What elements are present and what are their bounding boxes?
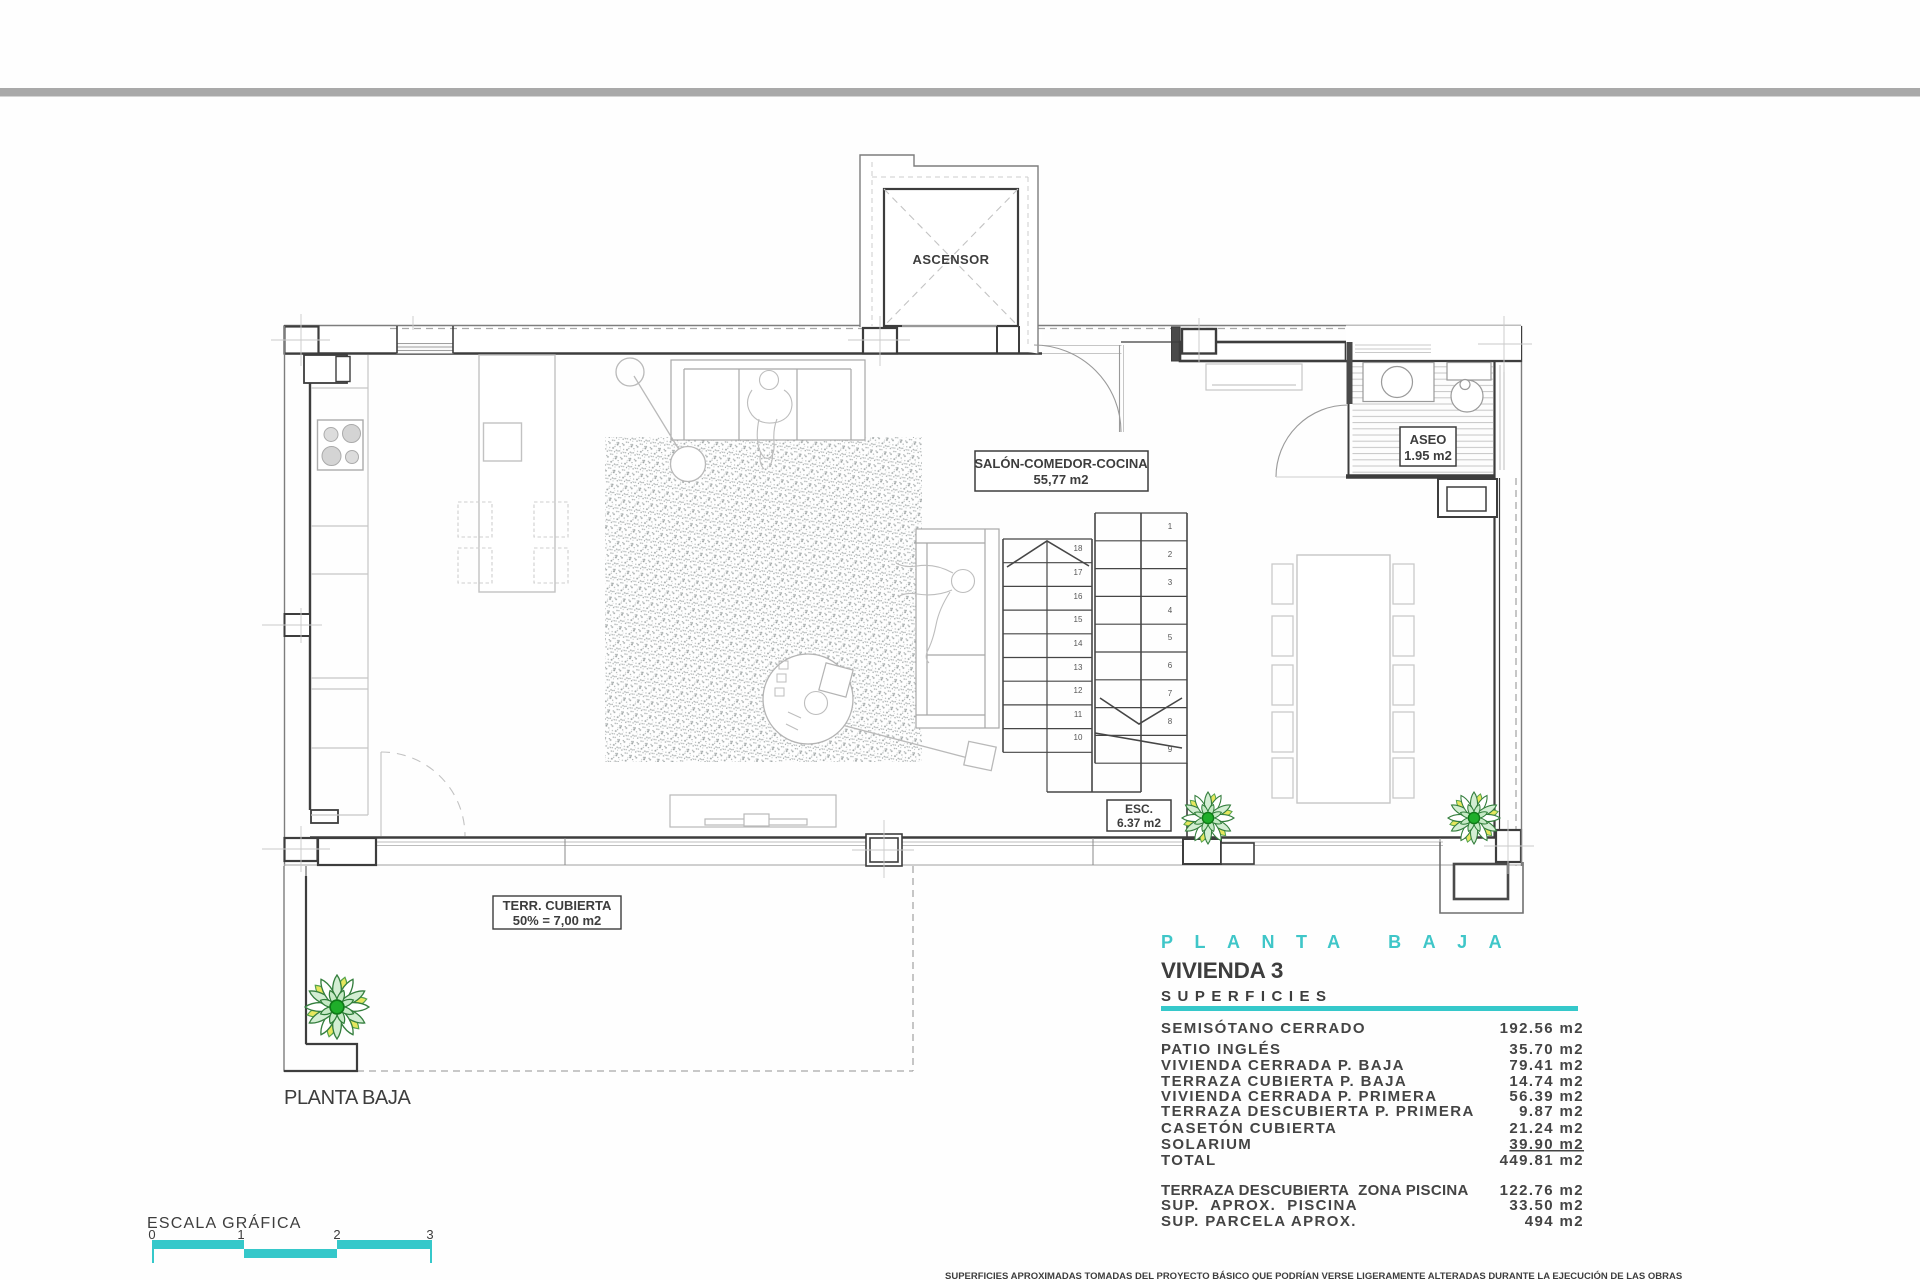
svg-text:SUPERFICIES: SUPERFICIES (1161, 988, 1333, 1005)
svg-text:17: 17 (1074, 568, 1083, 577)
svg-text:11: 11 (1074, 710, 1083, 719)
svg-text:PLANTA BAJA: PLANTA BAJA (284, 1087, 411, 1109)
svg-text:35.70 m2: 35.70 m2 (1509, 1041, 1584, 1058)
svg-text:PATIO INGLÉS: PATIO INGLÉS (1161, 1041, 1281, 1058)
svg-text:7: 7 (1168, 689, 1173, 698)
svg-text:SEMISÓTANO CERRADO: SEMISÓTANO CERRADO (1161, 1019, 1366, 1037)
svg-text:3: 3 (426, 1227, 433, 1242)
svg-text:3: 3 (1168, 578, 1173, 587)
svg-text:55,77 m2: 55,77 m2 (1034, 472, 1089, 487)
svg-text:50% = 7,00 m2: 50% = 7,00 m2 (513, 913, 602, 928)
svg-text:192.56 m2: 192.56 m2 (1500, 1020, 1584, 1037)
svg-text:1: 1 (1168, 522, 1173, 531)
svg-text:18: 18 (1074, 544, 1083, 553)
svg-text:PLANTA BAJA: PLANTA BAJA (1161, 932, 1523, 952)
svg-text:2: 2 (1168, 550, 1173, 559)
svg-text:VIVIENDA CERRADA P. BAJA: VIVIENDA CERRADA P. BAJA (1161, 1057, 1405, 1074)
svg-text:16: 16 (1074, 592, 1083, 601)
svg-text:ASCENSOR: ASCENSOR (913, 252, 990, 267)
svg-text:39.90 m2: 39.90 m2 (1509, 1136, 1584, 1153)
svg-text:TERR. CUBIERTA: TERR. CUBIERTA (503, 898, 612, 913)
svg-text:79.41 m2: 79.41 m2 (1509, 1057, 1584, 1074)
svg-text:15: 15 (1074, 615, 1083, 624)
svg-text:2: 2 (333, 1227, 340, 1242)
svg-text:SUPERFICIES APROXIMADAS TOMADA: SUPERFICIES APROXIMADAS TOMADAS DEL PROY… (945, 1270, 1682, 1280)
svg-text:0: 0 (148, 1227, 155, 1242)
svg-text:VIVIENDA 3: VIVIENDA 3 (1161, 958, 1283, 983)
svg-text:494 m2: 494 m2 (1525, 1213, 1584, 1230)
svg-text:SUP. APROX. PISCINA: SUP. APROX. PISCINA (1161, 1197, 1358, 1214)
svg-text:ESC.: ESC. (1125, 802, 1153, 816)
svg-text:13: 13 (1074, 663, 1083, 672)
svg-text:SUP. PARCELA APROX.: SUP. PARCELA APROX. (1161, 1213, 1357, 1230)
svg-text:ASEO: ASEO (1410, 432, 1447, 447)
svg-text:ESCALA GRÁFICA: ESCALA GRÁFICA (147, 1213, 302, 1232)
svg-text:CASETÓN CUBIERTA: CASETÓN CUBIERTA (1161, 1119, 1337, 1137)
svg-text:SALÓN-COMEDOR-COCINA: SALÓN-COMEDOR-COCINA (974, 456, 1148, 471)
svg-text:8: 8 (1168, 717, 1173, 726)
svg-text:9: 9 (1168, 745, 1173, 754)
svg-text:1.95 m2: 1.95 m2 (1404, 448, 1452, 463)
svg-text:14: 14 (1074, 639, 1083, 648)
svg-text:TOTAL: TOTAL (1161, 1152, 1217, 1169)
svg-text:449.81 m2: 449.81 m2 (1500, 1152, 1584, 1169)
svg-text:TERRAZA DESCUBIERTA P. PRIMERA: TERRAZA DESCUBIERTA P. PRIMERA (1161, 1103, 1475, 1120)
svg-text:SOLARIUM: SOLARIUM (1161, 1136, 1252, 1153)
svg-text:9.87 m2: 9.87 m2 (1519, 1103, 1584, 1120)
svg-text:12: 12 (1074, 686, 1083, 695)
svg-text:6: 6 (1168, 661, 1173, 670)
svg-text:4: 4 (1168, 606, 1173, 615)
svg-text:10: 10 (1074, 733, 1083, 742)
svg-text:5: 5 (1168, 633, 1173, 642)
svg-text:1: 1 (237, 1227, 244, 1242)
svg-text:33.50 m2: 33.50 m2 (1509, 1197, 1584, 1214)
svg-text:6.37 m2: 6.37 m2 (1117, 816, 1161, 830)
svg-text:21.24 m2: 21.24 m2 (1509, 1120, 1584, 1137)
